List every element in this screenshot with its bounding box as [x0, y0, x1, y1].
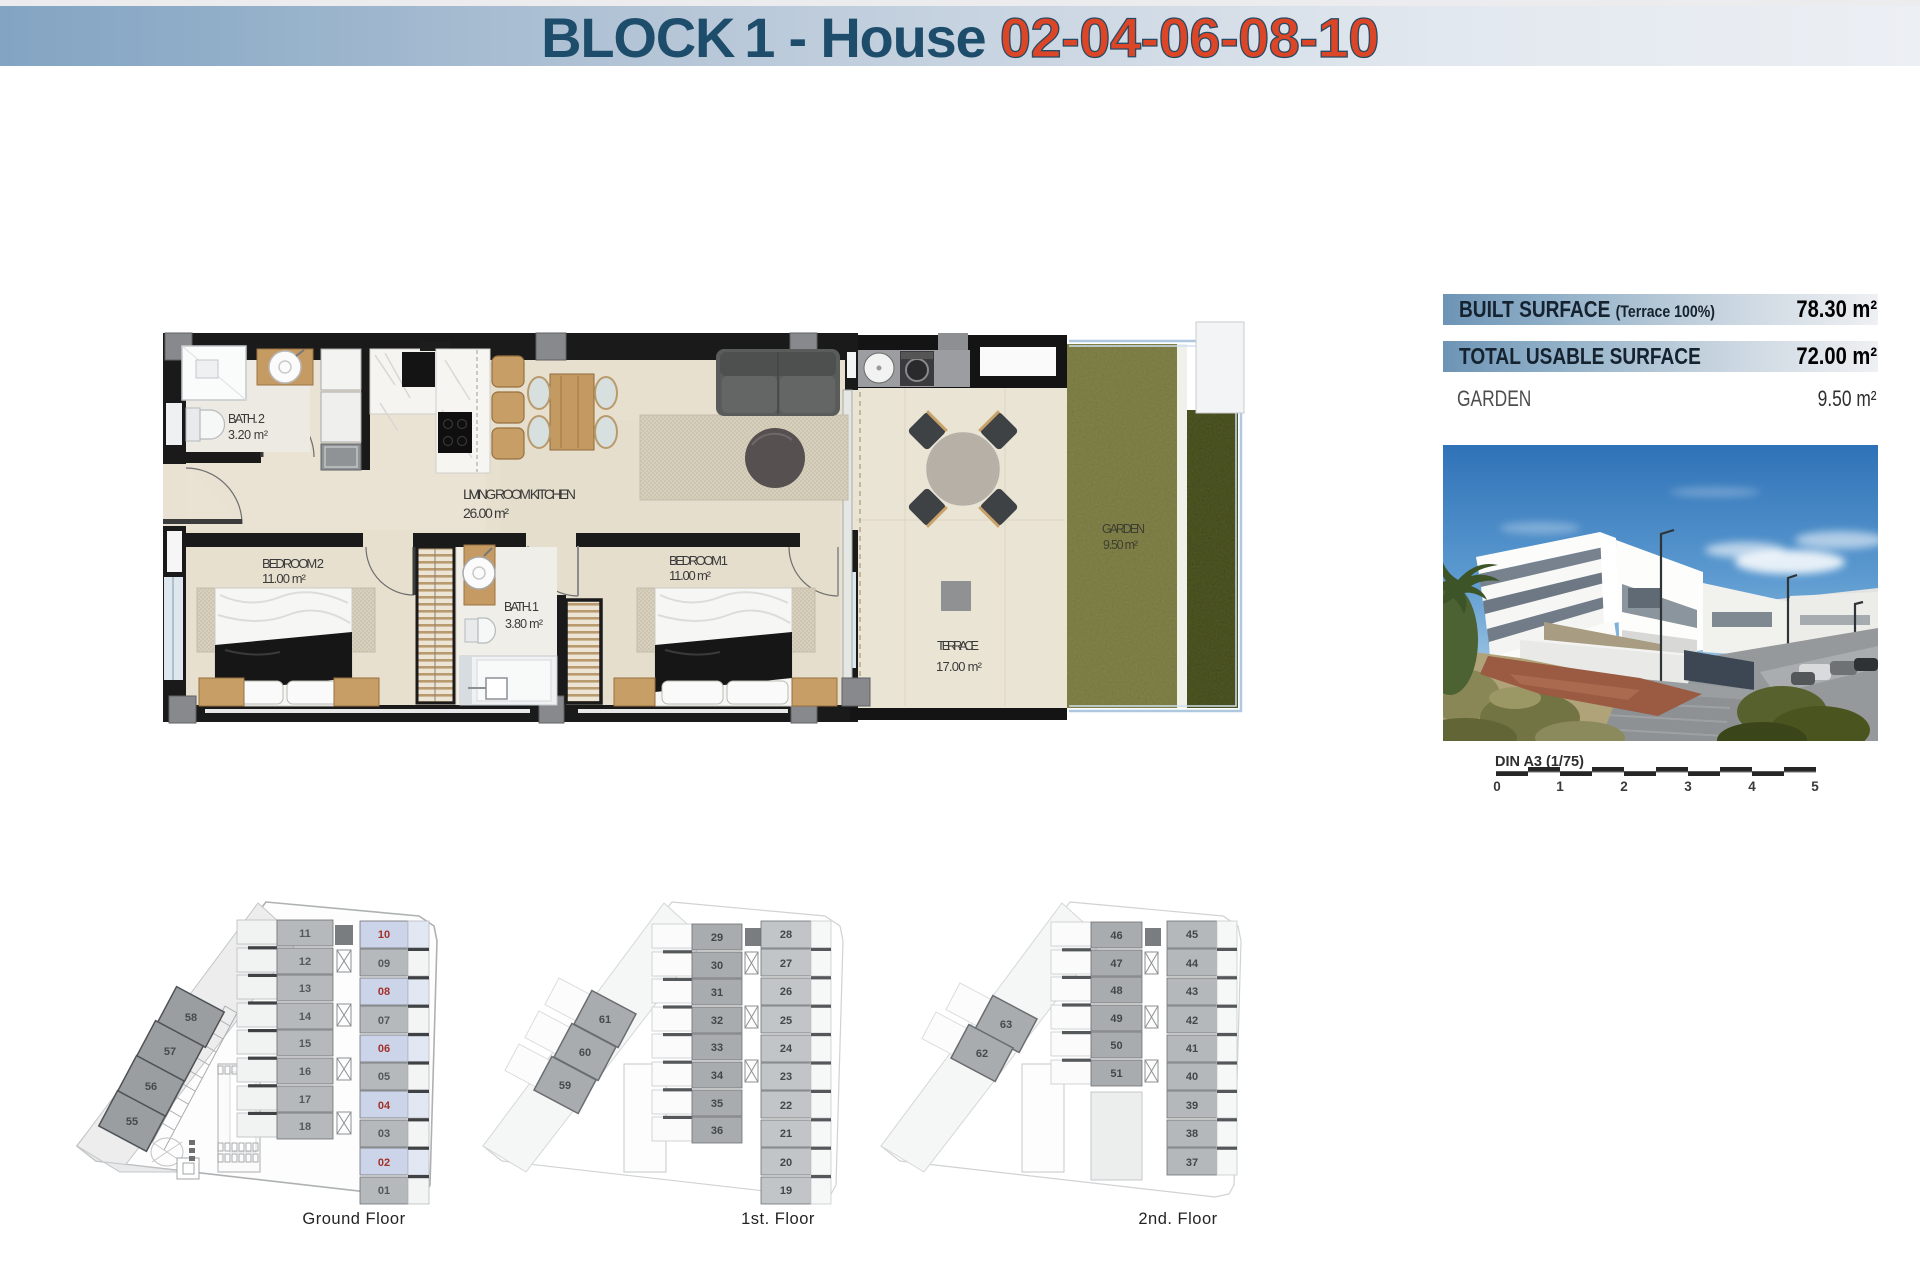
svg-text:37: 37 — [1186, 1157, 1198, 1169]
svg-text:3.80 m²: 3.80 m² — [505, 617, 543, 631]
svg-text:15: 15 — [299, 1038, 311, 1050]
svg-text:47: 47 — [1110, 958, 1122, 970]
svg-text:60: 60 — [579, 1047, 591, 1059]
svg-text:43: 43 — [1186, 986, 1198, 998]
svg-text:BATH. 1: BATH. 1 — [504, 600, 539, 614]
svg-text:30: 30 — [711, 960, 723, 972]
svg-text:12: 12 — [299, 956, 311, 968]
svg-text:28: 28 — [780, 929, 792, 941]
svg-text:17: 17 — [299, 1094, 311, 1106]
svg-text:LIVING ROOM KITCHEN: LIVING ROOM KITCHEN — [463, 486, 576, 502]
svg-text:35: 35 — [711, 1098, 723, 1110]
svg-text:02: 02 — [378, 1157, 390, 1169]
svg-text:41: 41 — [1186, 1043, 1198, 1055]
svg-text:22: 22 — [780, 1100, 792, 1112]
svg-text:55: 55 — [126, 1116, 138, 1128]
svg-text:34: 34 — [711, 1070, 724, 1082]
svg-text:01: 01 — [378, 1185, 390, 1197]
svg-text:49: 49 — [1110, 1013, 1122, 1025]
svg-text:46: 46 — [1110, 930, 1122, 942]
svg-text:38: 38 — [1186, 1128, 1198, 1140]
svg-text:23: 23 — [780, 1071, 792, 1083]
svg-text:1st. Floor: 1st. Floor — [741, 1210, 815, 1228]
svg-text:2nd. Floor: 2nd. Floor — [1138, 1210, 1217, 1228]
svg-text:57: 57 — [164, 1046, 176, 1058]
svg-text:11: 11 — [299, 928, 311, 940]
svg-text:3.20 m²: 3.20 m² — [228, 428, 268, 442]
svg-text:Ground Floor: Ground Floor — [302, 1210, 405, 1228]
svg-text:9.50 m²: 9.50 m² — [1103, 538, 1138, 552]
svg-text:BATH. 2: BATH. 2 — [228, 412, 265, 426]
svg-text:48: 48 — [1110, 985, 1122, 997]
svg-text:BEDROOM 1: BEDROOM 1 — [669, 553, 728, 568]
svg-text:31: 31 — [711, 987, 723, 999]
svg-text:26: 26 — [780, 986, 792, 998]
svg-text:08: 08 — [378, 986, 390, 998]
svg-text:63: 63 — [1000, 1019, 1012, 1031]
svg-text:20: 20 — [780, 1157, 792, 1169]
svg-text:04: 04 — [378, 1100, 391, 1112]
svg-text:56: 56 — [145, 1081, 157, 1093]
svg-text:0: 0 — [1493, 779, 1501, 794]
svg-text:61: 61 — [599, 1014, 611, 1026]
svg-text:GARDEN: GARDEN — [1102, 522, 1145, 536]
svg-text:36: 36 — [711, 1125, 723, 1137]
svg-text:11.00 m²: 11.00 m² — [669, 568, 712, 583]
svg-text:3: 3 — [1684, 779, 1692, 794]
svg-text:18: 18 — [299, 1121, 311, 1133]
svg-text:44: 44 — [1186, 958, 1199, 970]
svg-text:07: 07 — [378, 1015, 390, 1027]
svg-text:06: 06 — [378, 1043, 390, 1055]
svg-text:27: 27 — [780, 958, 792, 970]
svg-text:29: 29 — [711, 932, 723, 944]
svg-text:16: 16 — [299, 1066, 311, 1078]
svg-text:50: 50 — [1110, 1040, 1122, 1052]
svg-text:5: 5 — [1811, 779, 1819, 794]
svg-text:10: 10 — [378, 929, 390, 941]
svg-text:2: 2 — [1620, 779, 1628, 794]
svg-text:26.00 m²: 26.00 m² — [463, 505, 509, 521]
svg-text:4: 4 — [1748, 779, 1756, 794]
svg-text:33: 33 — [711, 1042, 723, 1054]
svg-text:17.00 m²: 17.00 m² — [936, 659, 983, 674]
svg-text:59: 59 — [559, 1080, 571, 1092]
svg-text:05: 05 — [378, 1071, 390, 1083]
svg-text:1: 1 — [1556, 779, 1564, 794]
svg-text:24: 24 — [780, 1043, 793, 1055]
svg-text:09: 09 — [378, 958, 390, 970]
svg-text:58: 58 — [185, 1012, 197, 1024]
svg-text:14: 14 — [299, 1011, 312, 1023]
svg-text:39: 39 — [1186, 1100, 1198, 1112]
svg-text:21: 21 — [780, 1128, 792, 1140]
svg-text:03: 03 — [378, 1128, 390, 1140]
svg-text:45: 45 — [1186, 929, 1198, 941]
svg-text:TERRACE: TERRACE — [937, 638, 979, 653]
svg-text:62: 62 — [976, 1048, 988, 1060]
svg-text:51: 51 — [1110, 1068, 1122, 1080]
svg-text:32: 32 — [711, 1015, 723, 1027]
svg-text:42: 42 — [1186, 1015, 1198, 1027]
svg-text:13: 13 — [299, 983, 311, 995]
svg-text:11.00 m²: 11.00 m² — [262, 571, 307, 586]
svg-text:25: 25 — [780, 1015, 792, 1027]
svg-text:40: 40 — [1186, 1071, 1198, 1083]
svg-text:19: 19 — [780, 1185, 792, 1197]
svg-text:BEDROOM 2: BEDROOM 2 — [262, 556, 324, 571]
